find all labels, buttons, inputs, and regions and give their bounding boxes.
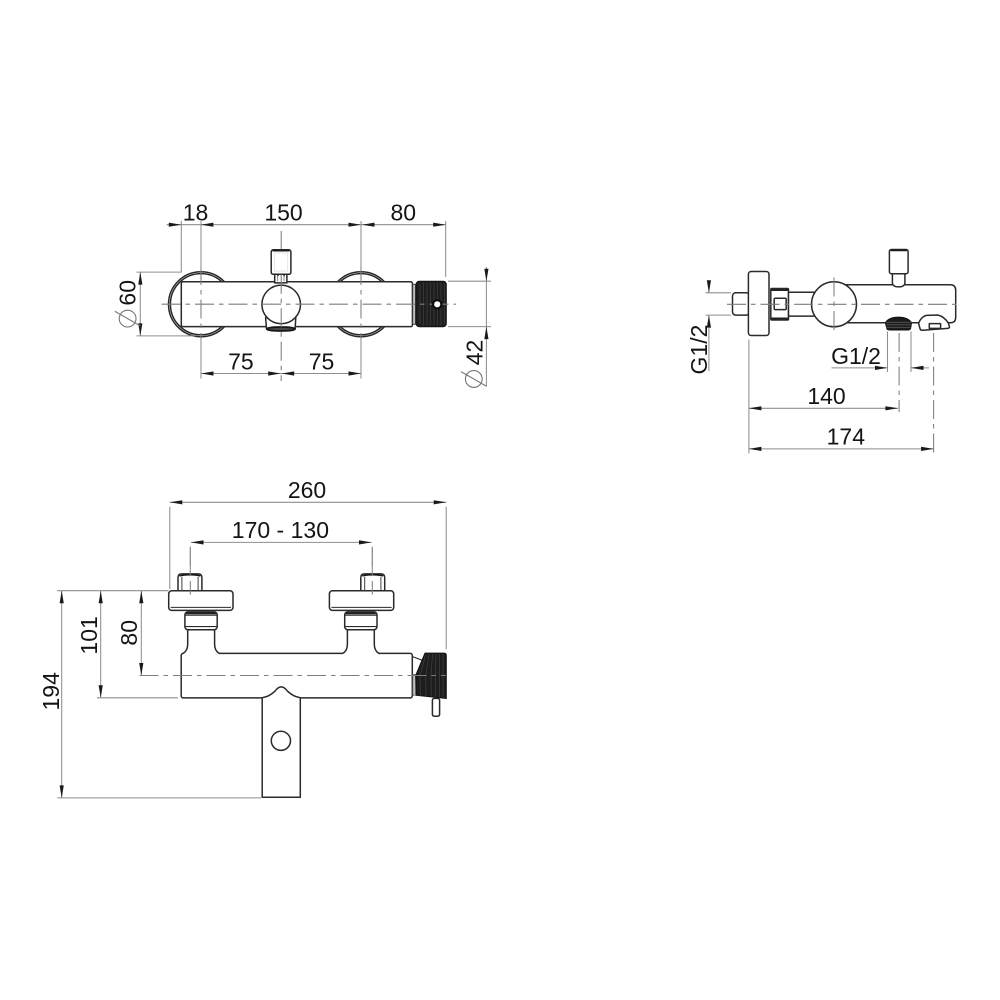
svg-text:101: 101 bbox=[76, 616, 102, 654]
svg-text:18: 18 bbox=[183, 200, 209, 226]
svg-text:170 - 130: 170 - 130 bbox=[232, 517, 329, 543]
svg-text:G1/2: G1/2 bbox=[831, 343, 881, 369]
svg-text:60: 60 bbox=[115, 280, 141, 306]
svg-text:75: 75 bbox=[228, 348, 254, 374]
svg-text:42: 42 bbox=[462, 340, 488, 366]
svg-text:G1/2: G1/2 bbox=[686, 325, 712, 375]
svg-text:194: 194 bbox=[38, 672, 64, 711]
svg-text:174: 174 bbox=[827, 424, 866, 450]
svg-text:260: 260 bbox=[288, 477, 326, 503]
svg-text:75: 75 bbox=[309, 348, 335, 374]
svg-text:80: 80 bbox=[391, 200, 417, 226]
svg-text:140: 140 bbox=[807, 383, 845, 409]
svg-text:150: 150 bbox=[264, 200, 302, 226]
svg-text:80: 80 bbox=[116, 620, 142, 646]
